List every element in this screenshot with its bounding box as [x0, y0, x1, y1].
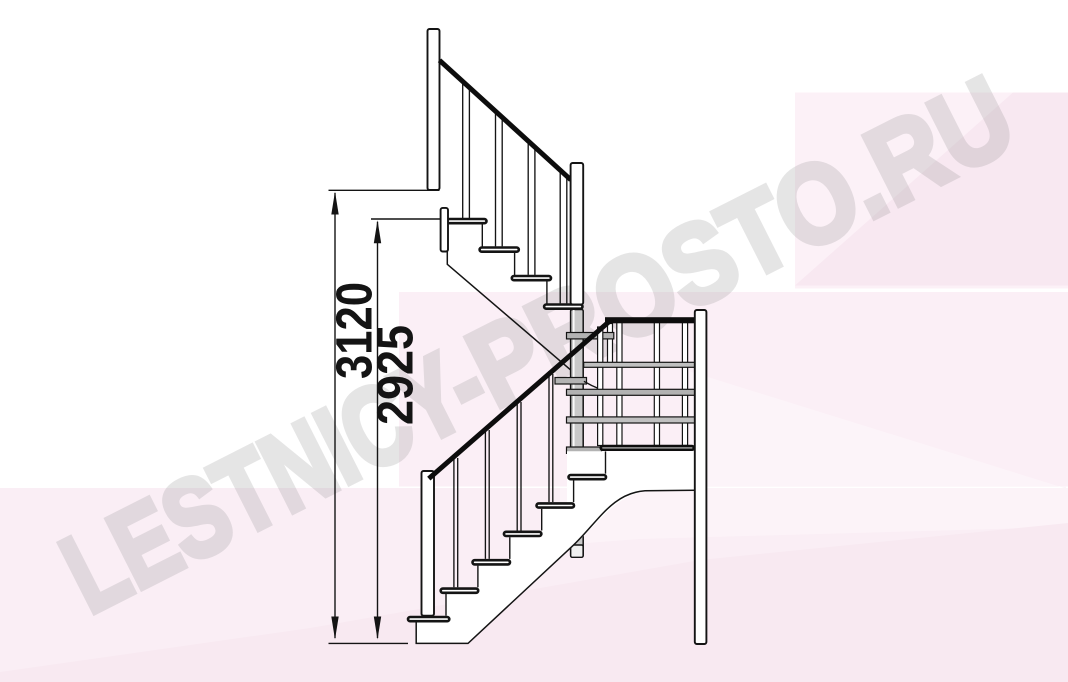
svg-text:2925: 2925: [367, 325, 424, 425]
